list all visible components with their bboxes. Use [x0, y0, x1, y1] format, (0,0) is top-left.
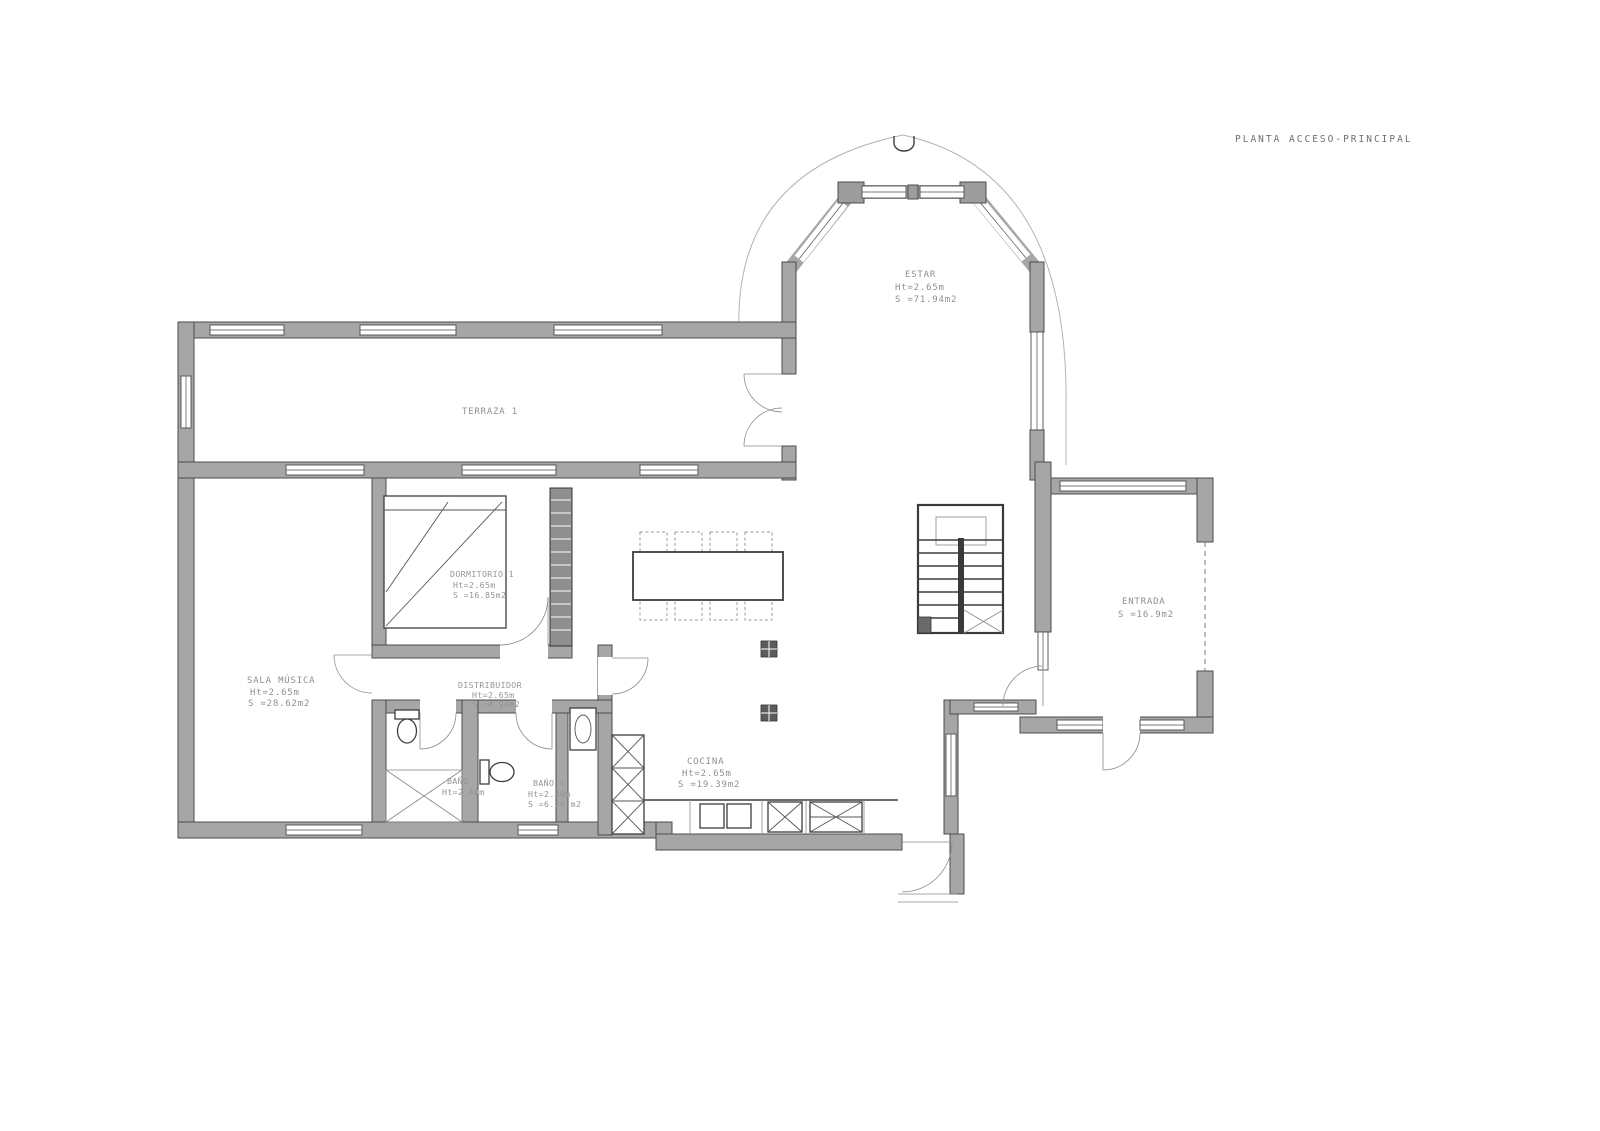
staircase — [918, 505, 1003, 633]
floor-plan-drawing: PLANTA ACCESO-PRINCIPAL ESTAR Ht=2.65m S… — [0, 0, 1600, 1131]
sink-bowl-1 — [700, 804, 724, 828]
dormitorio-area: S =16.85m2 — [453, 590, 506, 600]
bano-ht: Ht=2.40m — [442, 787, 485, 797]
bano1-area: S =6.20 m2 — [528, 799, 581, 809]
toilet1-tank — [480, 760, 489, 784]
terrace-french-doors — [744, 374, 782, 446]
sala-musica-area: S =28.62m2 — [248, 699, 310, 709]
bano-name: BAÑO — [447, 776, 468, 786]
toilet1-bowl — [490, 763, 514, 782]
entrada-area: S =16.9m2 — [1118, 610, 1174, 620]
distribuidor-area: S =4.94m2 — [472, 699, 520, 709]
sink-bowl-2 — [727, 804, 751, 828]
entrada-walls — [1020, 462, 1213, 734]
bed — [384, 496, 506, 628]
cocina-door — [612, 658, 648, 694]
dormitorio-door — [500, 597, 548, 645]
cocina-ht: Ht=2.65m — [682, 769, 732, 779]
bay-apex-vent — [894, 136, 914, 151]
bano-fixtures — [386, 710, 462, 822]
distribuidor-name: DISTRIBUIDOR — [458, 680, 522, 690]
sala-musica-name: SALA MÚSICA — [247, 674, 315, 686]
bano1-name: BAÑO 1 — [533, 778, 565, 788]
cocina-name: COCINA — [687, 757, 724, 767]
sink-counter — [570, 708, 596, 750]
bano1-ht: Ht=2.40m — [528, 789, 571, 799]
entrada-name: ENTRADA — [1122, 597, 1166, 607]
toilet-tank — [395, 710, 419, 719]
kitchen-fixtures — [612, 735, 898, 834]
terraza-name: TERRAZA 1 — [462, 407, 518, 417]
dining-table — [633, 552, 783, 600]
dining-table-set — [633, 532, 783, 620]
estar-name: ESTAR — [905, 270, 936, 280]
entrada-outer-door — [1103, 733, 1140, 770]
dormitorio-ht: Ht=2.65m — [453, 580, 496, 590]
columns — [761, 641, 777, 721]
plan-title: PLANTA ACCESO-PRINCIPAL — [1235, 134, 1413, 145]
terrace-walls — [178, 322, 796, 478]
estar-area: S =71.94m2 — [895, 295, 957, 305]
toilet-bowl — [398, 719, 417, 743]
porch-door — [902, 842, 952, 892]
bano-door — [420, 713, 456, 749]
estar-ht: Ht=2.65m — [895, 283, 945, 293]
closet — [550, 488, 572, 646]
cocina-area: S =19.39m2 — [678, 780, 740, 790]
sala-musica-ht: Ht=2.65m — [250, 688, 300, 698]
bano1-door — [516, 713, 552, 749]
bay-walls — [782, 182, 1044, 480]
floor-plan-sheet: PLANTA ACCESO-PRINCIPAL ESTAR Ht=2.65m S… — [0, 0, 1600, 1131]
dormitorio-name: DORMITORIO 1 — [450, 569, 514, 579]
sala-musica-door — [334, 655, 372, 693]
